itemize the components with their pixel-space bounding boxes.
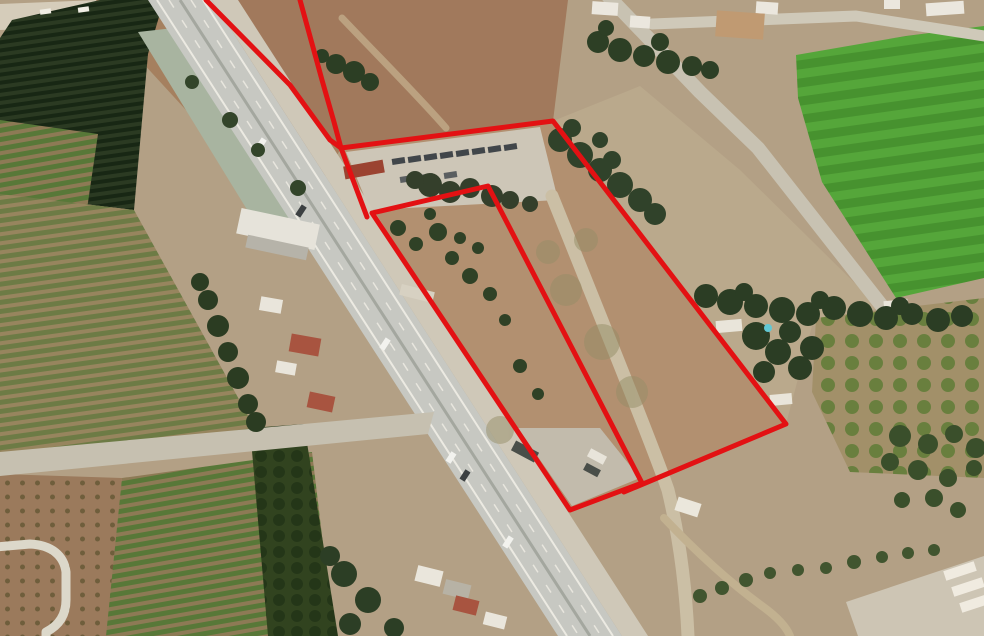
map-features-layer [0, 0, 984, 636]
satellite-canvas [0, 0, 984, 636]
map-viewport[interactable] [0, 0, 984, 636]
building-tan-topright [715, 10, 765, 39]
pool-dot [764, 324, 772, 332]
